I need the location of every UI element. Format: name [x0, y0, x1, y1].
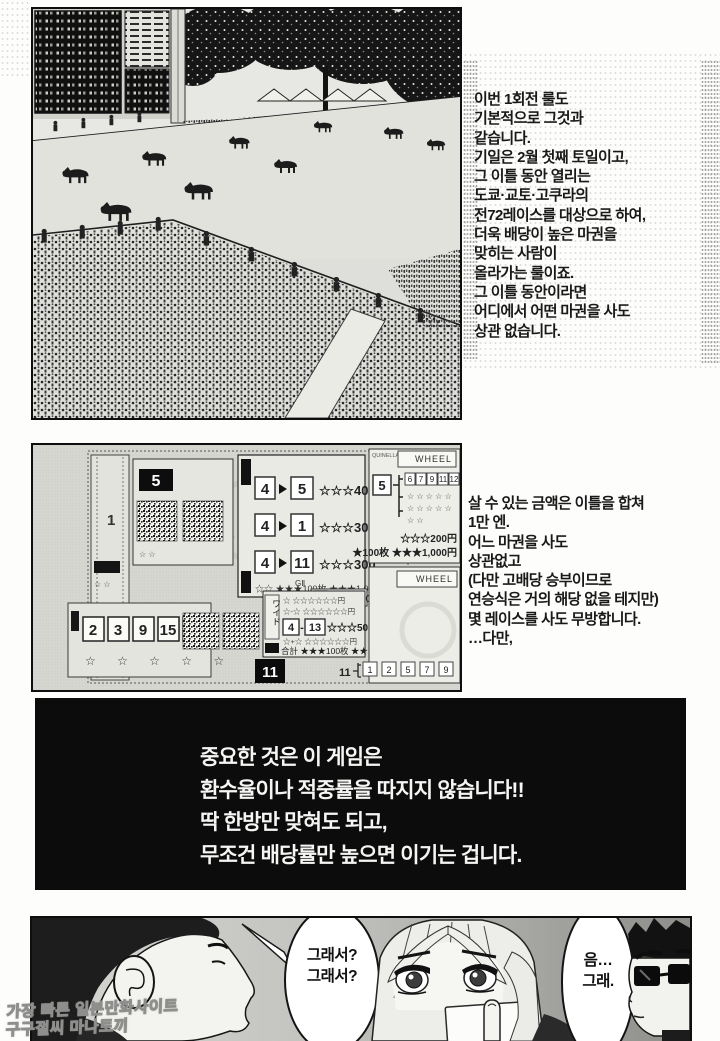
narration-line: 그 이틀 동안 열리는 — [474, 167, 645, 186]
glasses-man — [628, 918, 690, 1041]
ticket-qr: 5 ☆ ☆ — [133, 459, 233, 565]
narration-line: …다만, — [468, 629, 658, 648]
grade-label: GⅡ — [295, 579, 305, 588]
panel-betting-tickets: JRA JRA 1 ☆ ☆ 5 ☆ — [31, 443, 462, 692]
narration-line: 맞히는 사람이 — [474, 244, 645, 263]
narration-line: 기일은 2월 첫째 토일이고, — [474, 148, 645, 167]
amount: ☆☆☆200円 — [400, 532, 457, 545]
ticket-number: 5 — [152, 473, 161, 490]
speech-text-1: 그래서? 그래서? — [286, 945, 378, 987]
horse-number: 7 — [419, 475, 424, 484]
ticket-number: 1 — [107, 512, 115, 529]
narration-block-1: 이번 1회전 룰도 기본적으로 그것과 같습니다. 기일은 2월 첫째 토일이고… — [474, 90, 645, 341]
stars: ☆ ☆ — [94, 580, 111, 589]
amount: ★100枚 ★★★1,000円 — [353, 546, 458, 559]
narration-line: 기본적으로 그것과 — [474, 109, 645, 128]
horse-number: 4 — [288, 622, 295, 634]
narration-line: 상관 없습니다. — [474, 322, 645, 341]
scan-noise — [0, 0, 30, 80]
panel-paddock-scene — [31, 7, 462, 420]
stars: ☆-☆ ☆☆☆☆☆☆円 — [283, 607, 355, 616]
horse-number: 11 — [439, 475, 448, 484]
tote-board — [33, 9, 185, 123]
wheel-label: WHEEL — [416, 574, 453, 584]
horse-number: 4 — [261, 481, 270, 498]
wide-label: ワイド — [271, 599, 281, 626]
speech-line: 그래서? — [286, 966, 378, 987]
narration-line: 도쿄·교토·고쿠라의 — [474, 186, 645, 205]
collar — [662, 1030, 690, 1041]
horse-number: 6 — [408, 475, 413, 484]
separator: - — [300, 622, 304, 634]
horse-number: 5 — [378, 478, 385, 493]
stars: ☆ ☆ ☆ ☆ ☆ — [85, 654, 233, 668]
horse-number: 1 — [298, 518, 306, 535]
horse-number: 5 — [405, 665, 410, 675]
horse-number: 1 — [367, 665, 372, 675]
qr-code — [137, 501, 177, 541]
ticket-exacta: 4 5 ☆☆☆400 4 1 ☆☆☆300 4 11 ☆☆☆300 ☆☆ ★ — [238, 455, 379, 597]
horse-number: 11 — [339, 667, 351, 679]
narration-line: 어디에서 어떤 마권을 사도 — [474, 302, 645, 321]
narration-line: 살 수 있는 금액은 이틀을 합쳐 — [468, 494, 658, 513]
narration-line: 전72레이스를 대상으로 하여, — [474, 206, 645, 225]
horse-number: 15 — [160, 622, 177, 639]
narration-line: 그 이틀 동안이라면 — [474, 283, 645, 302]
quinella-label: QUINELLA — [372, 453, 400, 459]
odds: ☆☆☆300 — [319, 557, 376, 572]
horse-number: 9 — [443, 665, 448, 675]
narration-line: 더욱 배당이 높은 마권을 — [474, 225, 645, 244]
ticket-wheel-5: QUINELLA WHEEL 5 6 7 9 11 12 ☆ ☆ ☆ ☆ ☆ ☆… — [353, 449, 461, 563]
horse-number: 7 — [424, 665, 429, 675]
caption-line: 딱 한방만 맞혀도 되고, — [200, 807, 686, 840]
horse-number: 2 — [89, 622, 97, 639]
speech-line: 그래. — [564, 971, 632, 992]
horse-number: 3 — [114, 622, 122, 639]
stars: ☆+☆ ☆☆☆☆☆☆円 — [283, 637, 357, 646]
horse-number: 9 — [139, 622, 147, 639]
qr-code — [183, 501, 223, 541]
speech-text-2: 음… 그래. — [564, 950, 632, 992]
horse-number: 9 — [430, 475, 435, 484]
panel-black-caption: 중요한 것은 이 게임은 환수율이나 적중률을 따지지 않습니다!! 딱 한방만… — [35, 698, 686, 890]
speech-line: 그래서? — [286, 945, 378, 966]
caption-line: 무조건 배당률만 높으면 이기는 겁니다. — [200, 840, 686, 873]
manga-page: 이번 1회전 룰도 기본적으로 그것과 같습니다. 기일은 2월 첫째 토일이고… — [0, 0, 720, 1041]
stars: ☆ ☆ — [407, 516, 424, 525]
narration-line: 이번 1회전 룰도 — [474, 90, 645, 109]
scan-noise — [701, 60, 720, 365]
narration-line: 같습니다. — [474, 129, 645, 148]
narration-line: 연승식은 거의 해당 없을 테지만) — [468, 590, 658, 609]
glasses-icon — [668, 964, 690, 984]
wheel-label: WHEEL — [415, 454, 452, 464]
horse-number: 4 — [261, 555, 270, 572]
narration-line: 1만 엔. — [468, 513, 658, 532]
narration-line: 올라가는 룰이죠. — [474, 264, 645, 283]
horse-number: 5 — [298, 481, 306, 498]
stars: ☆ ☆ ☆ ☆ ☆ — [407, 504, 452, 513]
caption-line: 환수율이나 적중률을 따지지 않습니다!! — [200, 775, 686, 808]
ticket-number: 11 — [262, 664, 278, 681]
horse-number: 2 — [386, 665, 391, 675]
narration-line: 몇 레이스를 사도 무방합니다. — [468, 610, 658, 629]
narration-block-2: 살 수 있는 금액은 이틀을 합쳐 1만 엔. 어느 마권을 사도 상관없고 (… — [468, 494, 658, 648]
eyebrow — [676, 951, 690, 952]
horse-number: 12 — [450, 475, 459, 484]
horse-number: 13 — [309, 622, 321, 634]
narration-line: 상관없고 — [468, 552, 658, 571]
site-watermark: 가장 빠른 일본만화사이트 구구절씨 마나토끼 — [5, 998, 178, 1040]
horse-number: 11 — [294, 555, 310, 572]
stars: ☆ ☆☆☆☆☆☆円 — [283, 596, 345, 605]
caption-line: 중요한 것은 이 게임은 — [200, 742, 686, 775]
qr-code — [223, 613, 259, 649]
narration-line: (다만 고배당 승부이므로 — [468, 571, 658, 590]
stars: ☆ ☆ — [139, 550, 156, 559]
finger — [484, 1000, 500, 1041]
stars: ☆ ☆ ☆ ☆ ☆ — [407, 492, 452, 501]
qr-code — [183, 613, 219, 649]
narration-line: 어느 마권을 사도 — [468, 533, 658, 552]
horse-number: 4 — [261, 518, 270, 535]
speech-line: 음… — [564, 950, 632, 971]
odds: ☆☆☆300 — [319, 520, 376, 535]
odds: ☆☆☆400 — [319, 483, 376, 498]
